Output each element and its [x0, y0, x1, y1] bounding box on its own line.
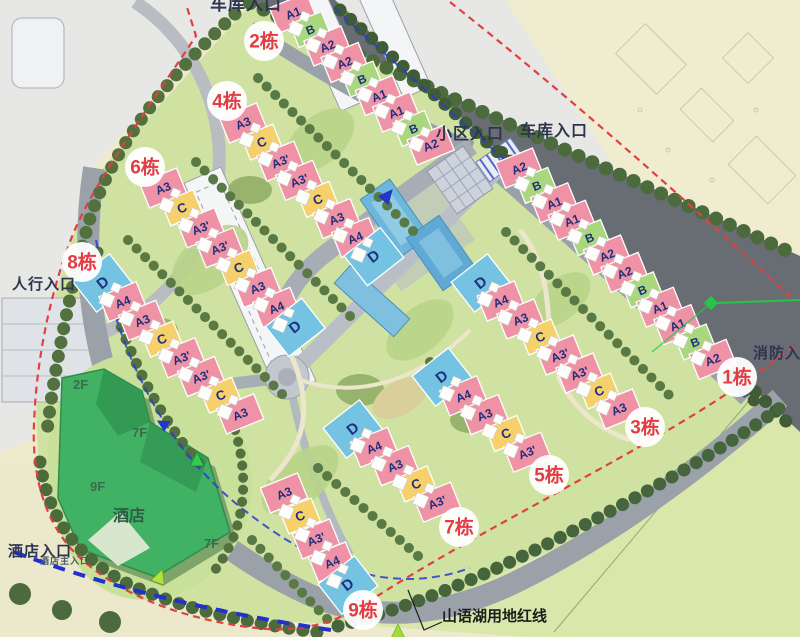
building-badge: 4栋	[207, 81, 247, 121]
building-badge: 1栋	[717, 357, 757, 397]
site-plan-svg: A1BA2A2BA1A1BA2A2BA1A1BA2A2BA1A1BA2A3CA3…	[0, 0, 800, 637]
building-badge-label: 8栋	[67, 251, 97, 274]
round-plaza-center	[278, 368, 296, 386]
building-badge: 2栋	[244, 21, 284, 61]
hotel-floor-label: 7F	[132, 425, 147, 440]
boundary-note-label: 山语湖用地红线	[442, 607, 547, 625]
building-badge-label: 3栋	[630, 416, 660, 439]
pedestrian-entrance-label: 人行入口	[12, 275, 76, 293]
hotel-floor-label: 2F	[73, 377, 88, 392]
fire-entrance-label: 消防入口	[753, 344, 800, 362]
hotel-name-label: 酒店	[113, 506, 145, 525]
building-badge-label: 9栋	[348, 599, 378, 622]
building-badge-label: 7栋	[444, 516, 474, 539]
site-plan-page: A1BA2A2BA1A1BA2A2BA1A1BA2A2BA1A1BA2A3CA3…	[0, 0, 800, 637]
building-badge-label: 6栋	[130, 156, 160, 179]
building-badge-label: 2栋	[249, 30, 279, 53]
building-badge-label: 5栋	[534, 464, 564, 487]
hotel-main-entrance-label: 酒店主入口	[40, 555, 90, 566]
building-badge: 3栋	[625, 407, 665, 447]
building-badge-label: 4栋	[212, 90, 242, 113]
garage-entrance-top-label: 车库入口	[210, 0, 282, 14]
offsite-building	[12, 18, 64, 88]
hotel-floor-label: 7F	[204, 536, 219, 551]
building-badge-label: 1栋	[722, 366, 752, 389]
community-entrance-label: 小区入口	[436, 125, 504, 143]
building-badge: 6栋	[125, 147, 165, 187]
building-badge: 9栋	[343, 590, 383, 630]
building-badge: 7栋	[439, 507, 479, 547]
building-badge: 5栋	[529, 455, 569, 495]
hotel-floor-label: 9F	[90, 479, 105, 494]
garage-entrance-right-label: 车库入口	[520, 121, 588, 140]
